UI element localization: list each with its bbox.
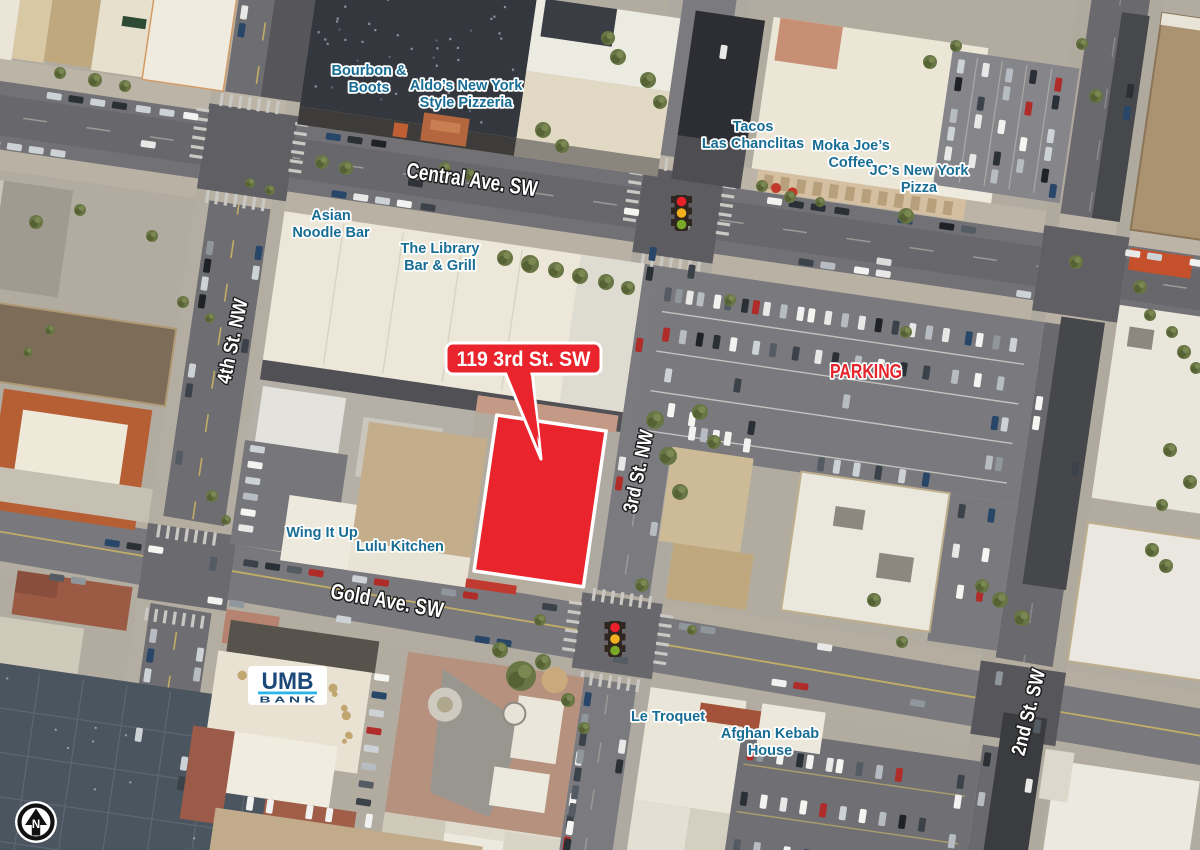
svg-text:N: N xyxy=(32,819,40,831)
svg-text:Tacos: Tacos xyxy=(733,119,774,135)
svg-text:Noodle Bar: Noodle Bar xyxy=(292,225,370,241)
svg-text:119 3rd St. SW: 119 3rd St. SW xyxy=(457,348,591,371)
svg-text:Style Pizzeria: Style Pizzeria xyxy=(420,95,514,111)
svg-text:Wing It Up: Wing It Up xyxy=(286,525,358,541)
svg-text:Bourbon &: Bourbon & xyxy=(332,63,407,79)
svg-text:UMB: UMB xyxy=(262,668,314,695)
svg-text:Afghan Kebab: Afghan Kebab xyxy=(721,726,819,742)
svg-text:Bar & Grill: Bar & Grill xyxy=(404,258,476,274)
svg-text:Aldo’s New York: Aldo’s New York xyxy=(410,78,523,94)
svg-text:Lulu Kitchen: Lulu Kitchen xyxy=(356,539,444,555)
svg-text:Le Troquet: Le Troquet xyxy=(631,709,705,725)
svg-text:Coffee: Coffee xyxy=(828,155,873,171)
svg-text:The Library: The Library xyxy=(401,241,480,257)
svg-text:PARKING: PARKING xyxy=(830,361,902,383)
svg-text:Pizza: Pizza xyxy=(901,180,938,196)
svg-text:JC’s New York: JC’s New York xyxy=(870,163,970,179)
svg-text:B A N K: B A N K xyxy=(260,695,318,705)
svg-text:Las Chanclitas: Las Chanclitas xyxy=(702,136,804,152)
svg-text:Asian: Asian xyxy=(311,208,351,224)
svg-text:Moka Joe’s: Moka Joe’s xyxy=(812,138,890,154)
svg-text:House: House xyxy=(748,743,792,759)
svg-text:Boots: Boots xyxy=(348,80,389,96)
